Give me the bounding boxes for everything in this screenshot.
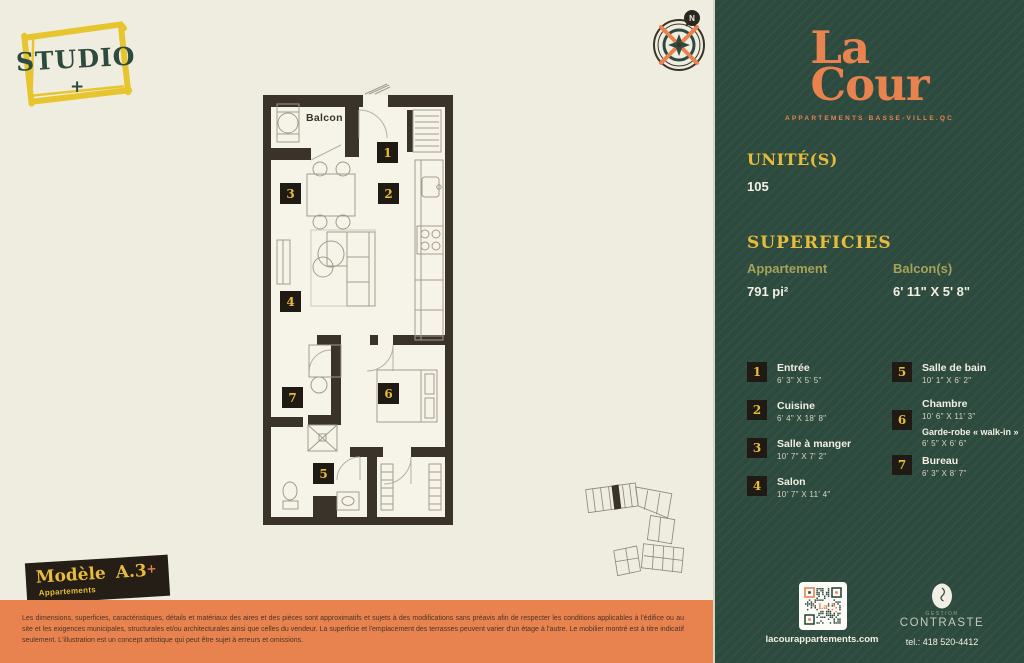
studio-label: STUDIO [15, 42, 136, 77]
balcony-label: Balcon [306, 112, 343, 124]
legend-num-6: 6 [892, 410, 912, 430]
legend-subname: Garde-robe « walk-in » [922, 427, 1019, 437]
unit-value: 105 [747, 179, 769, 194]
unit-heading: UNITÉ(S) [747, 150, 838, 169]
legend-num-2: 2 [747, 400, 767, 420]
room-tag-6: 6 [378, 383, 399, 404]
disclaimer-bar: Les dimensions, superficies, caractérist… [0, 600, 713, 663]
legend-dims: 6' 4" X 18' 8" [777, 414, 826, 423]
legend-dims: 6' 3" X 5' 5" [777, 376, 822, 385]
legend-name: Salle de bain [922, 362, 986, 374]
legend-item-chambre: 6 Chambre 10' 6" X 11' 3" Garde-robe « w… [892, 398, 1019, 448]
studio-plus-logo: STUDIO + [10, 6, 142, 110]
qr-center-logo: La [818, 602, 828, 611]
model-plus: + [146, 561, 157, 576]
superficies-heading: SUPERFICIES [747, 233, 892, 253]
legend-item-bureau: 7 Bureau 6' 3" X 8' 7" [892, 455, 967, 478]
gestion-contraste-logo-icon [929, 580, 955, 610]
legend-name: Chambre [922, 398, 1019, 410]
legend-item-entree: 1 Entrée 6' 3" X 5' 5" [747, 362, 822, 385]
qr-code: La [799, 582, 847, 630]
building-key-plan [583, 474, 687, 582]
model-code: A.3 [115, 561, 147, 583]
balcony-area-label: Balcon(s) [893, 261, 952, 276]
legend-dims: 10' 1" X 6' 2" [922, 376, 986, 385]
legend-item-cuisine: 2 Cuisine 6' 4" X 18' 8" [747, 400, 826, 423]
brand-tagline: APPARTEMENTS BASSE-VILLE.QC [715, 115, 1024, 122]
apartment-area-value: 791 pi² [747, 284, 788, 299]
legend-num-4: 4 [747, 476, 767, 496]
legend-dims: 6' 3" X 8' 7" [922, 469, 967, 478]
room-tag-5: 5 [313, 463, 334, 484]
brand-logo: La Cour APPARTEMENTS BASSE-VILLE.QC [715, 30, 1024, 122]
compass-icon: N [648, 8, 712, 74]
legend-num-1: 1 [747, 362, 767, 382]
model-badge: ModèleA.3+ Appartements [25, 555, 170, 605]
phone-number: tel.: 418 520-4412 [879, 637, 1005, 647]
room-tag-2: 2 [378, 183, 399, 204]
legend-num-5: 5 [892, 362, 912, 382]
legend-name: Salon [777, 476, 831, 488]
info-sidebar: La Cour APPARTEMENTS BASSE-VILLE.QC UNIT… [713, 0, 1024, 663]
brochure-page: STUDIO + N [0, 0, 1024, 663]
legend-item-salon: 4 Salon 10' 7" X 11' 4" [747, 476, 831, 499]
compass-north-label: N [689, 14, 695, 23]
legend-dims: 10' 7" X 11' 4" [777, 490, 831, 499]
balcony-area-value: 6' 11" X 5' 8" [893, 284, 970, 299]
room-tag-4: 4 [280, 291, 301, 312]
legend-num-3: 3 [747, 438, 767, 458]
legend-name: Cuisine [777, 400, 826, 412]
legend-name: Entrée [777, 362, 822, 374]
room-tag-1: 1 [377, 142, 398, 163]
brand-line2: Cour [810, 67, 928, 104]
apartment-area-label: Appartement [747, 261, 827, 276]
studio-plus: + [70, 77, 84, 97]
legend-dims: 10' 7" X 7' 2" [777, 452, 851, 461]
legend-name: Salle à manger [777, 438, 851, 450]
disclaimer-text: Les dimensions, superficies, caractérist… [22, 614, 684, 647]
legend-name: Bureau [922, 455, 967, 467]
website-text: lacourappartements.com [742, 634, 902, 645]
legend-num-7: 7 [892, 455, 912, 475]
room-tag-3: 3 [280, 183, 301, 204]
floor-plan: Balcon 1 2 3 4 5 6 7 [263, 82, 453, 529]
legend-dims: 10' 6" X 11' 3" [922, 412, 1019, 421]
legend-item-salle-a-manger: 3 Salle à manger 10' 7" X 7' 2" [747, 438, 851, 461]
contraste-label: CONTRASTE [879, 617, 1005, 629]
legend-subdims: 6' 5" X 6' 6" [922, 439, 1019, 448]
room-tag-7: 7 [282, 387, 303, 408]
legend-item-salle-de-bain: 5 Salle de bain 10' 1" X 6' 2" [892, 362, 986, 385]
